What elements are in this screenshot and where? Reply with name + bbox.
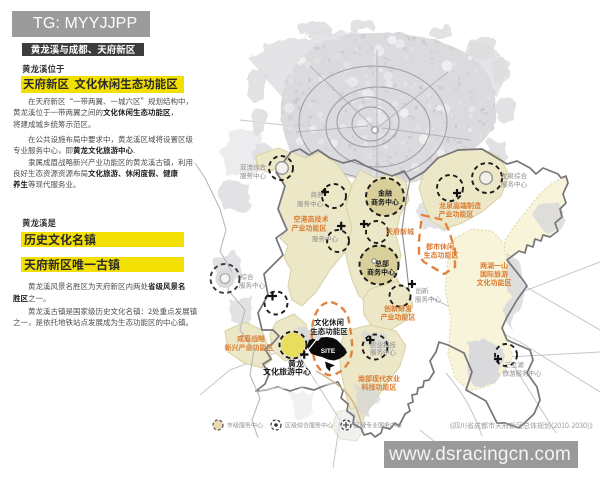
svg-text:产业功能区: 产业功能区 [439, 210, 474, 220]
svg-text:生态功能区: 生态功能区 [310, 326, 348, 337]
svg-text:商务中心: 商务中心 [371, 198, 399, 208]
svg-text:产业功能区: 产业功能区 [381, 313, 416, 323]
svg-text:产业功能区: 产业功能区 [292, 224, 327, 234]
svg-text:服务中心: 服务中心 [239, 280, 266, 290]
svg-text:文化旅游中心: 文化旅游中心 [263, 367, 311, 378]
svg-text:区级专业服务中心: 区级专业服务中心 [354, 421, 402, 430]
svg-text:市级服务中心: 市级服务中心 [227, 421, 263, 430]
svg-text:服务中心: 服务中心 [240, 170, 267, 180]
svg-text:SITE: SITE [321, 348, 336, 355]
svg-text:科技功能区: 科技功能区 [362, 383, 397, 393]
svg-text:服务中心: 服务中心 [297, 198, 324, 208]
svg-text:服务中心: 服务中心 [370, 347, 397, 357]
svg-text:新兴产业功能区: 新兴产业功能区 [225, 343, 274, 353]
svg-text:服务中心: 服务中心 [501, 179, 528, 189]
svg-text:旅游服务中心: 旅游服务中心 [503, 368, 543, 378]
svg-text:生态功能区: 生态功能区 [424, 251, 459, 261]
svg-text:区级综合服务中心: 区级综合服务中心 [285, 421, 333, 430]
svg-text:商务中心: 商务中心 [367, 268, 395, 278]
svg-text:服务中心: 服务中心 [415, 294, 442, 304]
svg-text:服务中心: 服务中心 [312, 233, 339, 243]
svg-text:《四川省成都市天府新区总体规划(2010-2030)》: 《四川省成都市天府新区总体规划(2010-2030)》 [446, 421, 596, 431]
svg-text:文化功能区: 文化功能区 [477, 278, 512, 288]
svg-text:天府新城: 天府新城 [386, 227, 414, 237]
